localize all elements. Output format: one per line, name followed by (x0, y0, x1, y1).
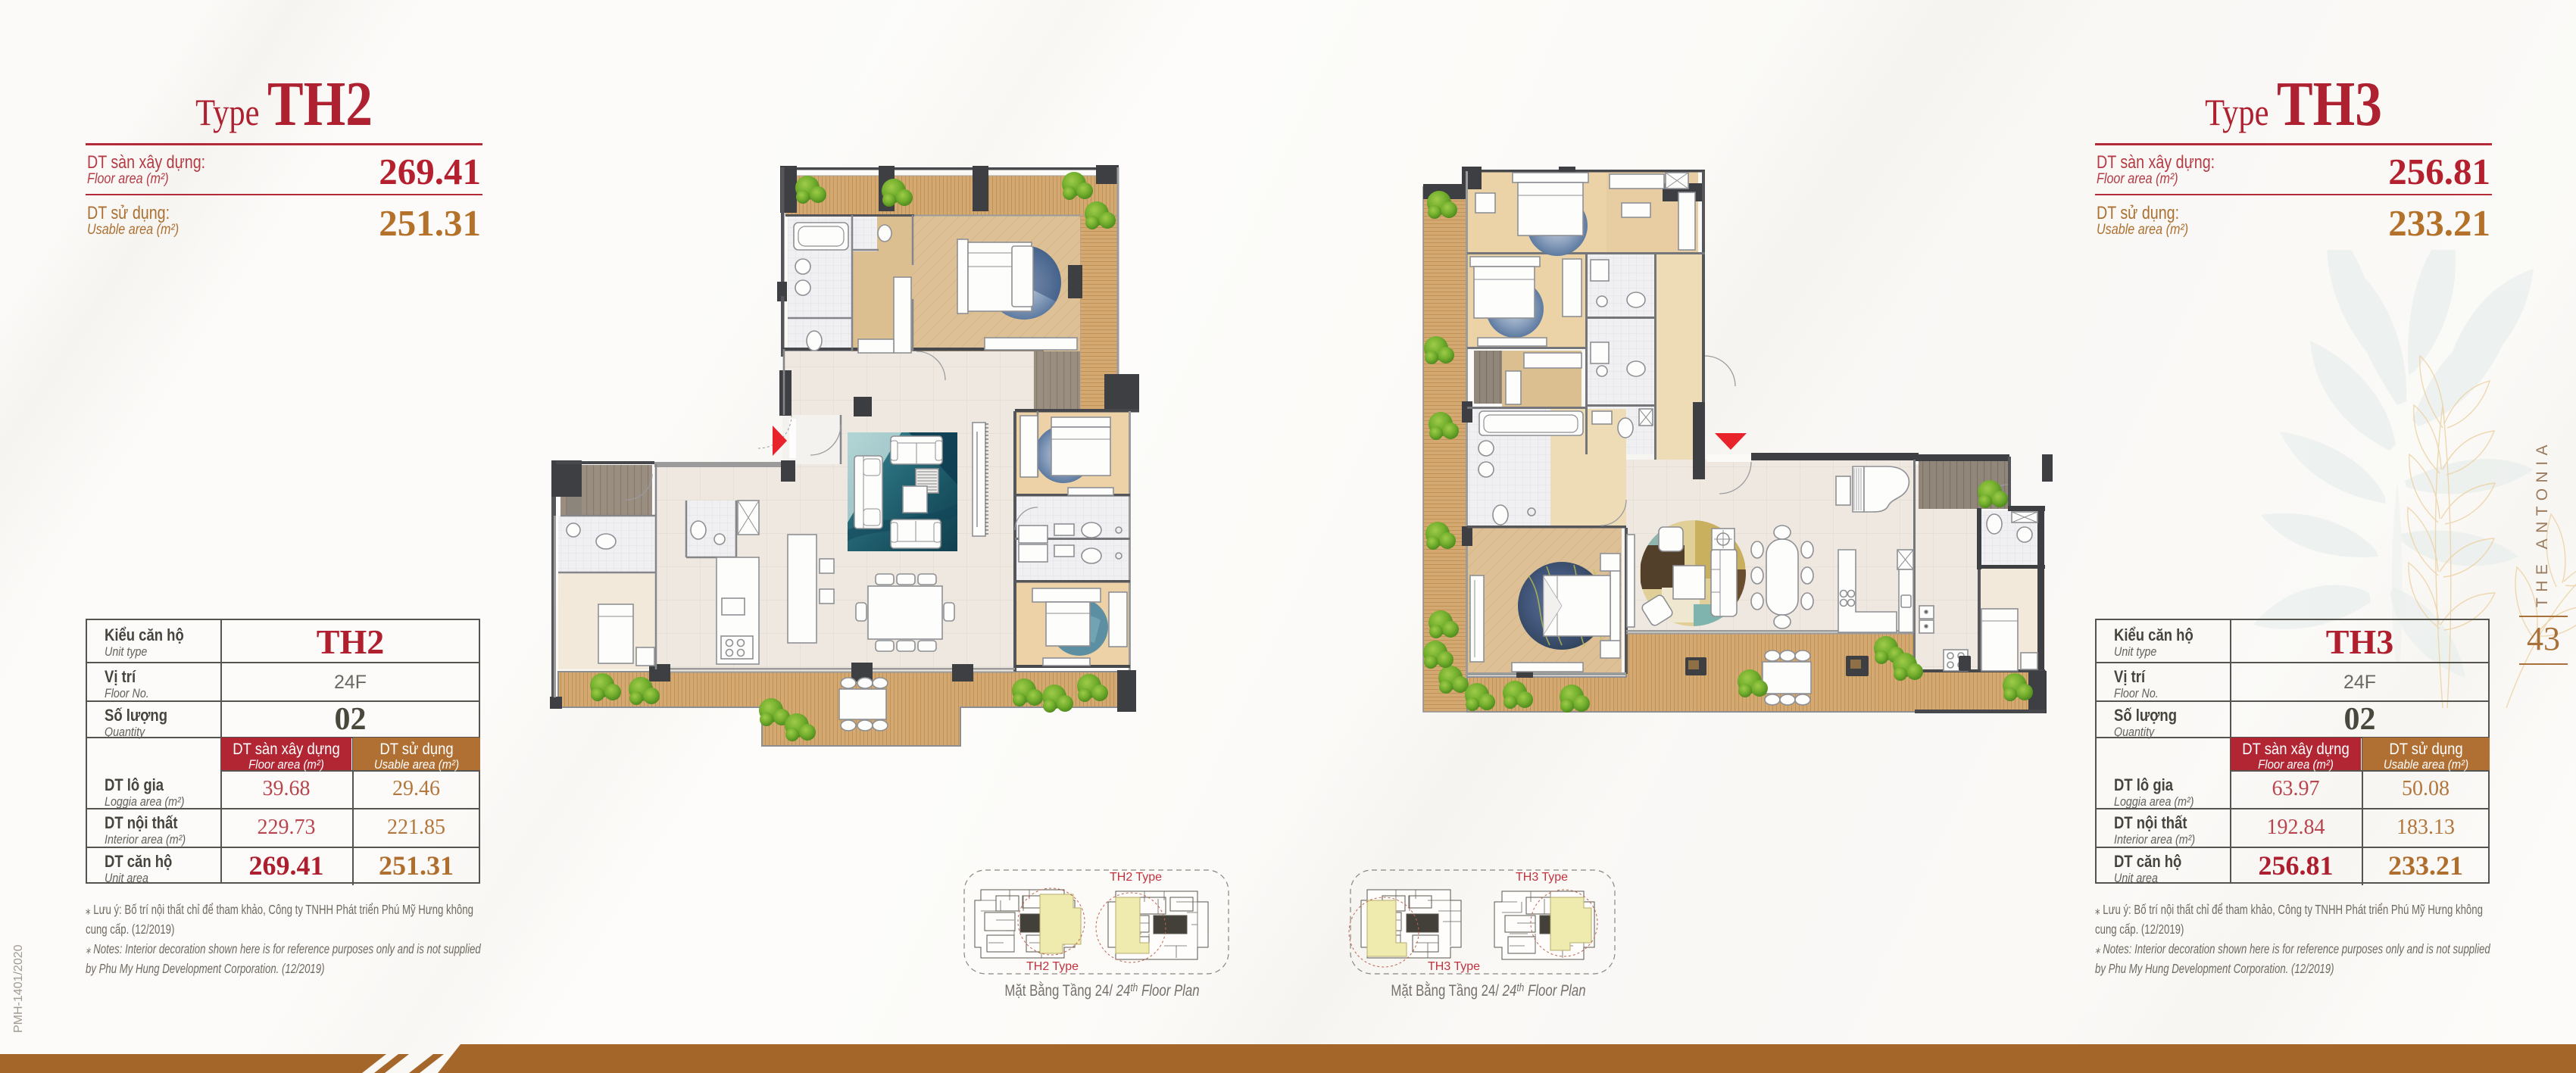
svg-text:TH3 Type: TH3 Type (1516, 871, 1568, 884)
svg-text:TH2 Type: TH2 Type (1110, 871, 1162, 884)
svg-text:TH2 Type: TH2 Type (1026, 960, 1079, 973)
svg-text:TH3 Type: TH3 Type (1428, 960, 1480, 973)
